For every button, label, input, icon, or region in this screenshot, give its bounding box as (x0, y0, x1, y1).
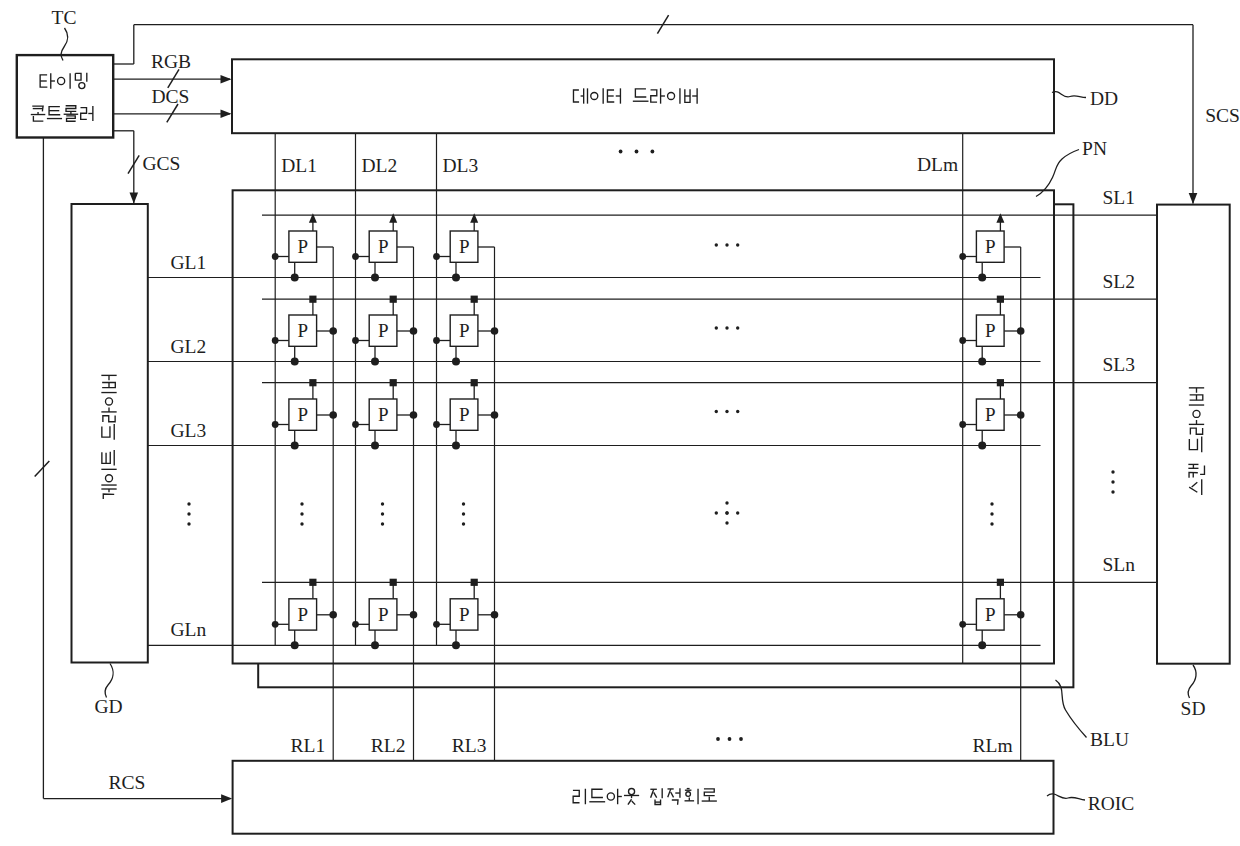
svg-text:BLU: BLU (1090, 729, 1129, 750)
svg-text:P: P (985, 604, 996, 625)
svg-text:P: P (378, 604, 389, 625)
svg-text:P: P (985, 320, 996, 341)
svg-text:SL3: SL3 (1103, 354, 1136, 375)
svg-text:P: P (459, 320, 470, 341)
svg-text:DCS: DCS (152, 86, 190, 107)
svg-text:DL2: DL2 (362, 155, 398, 176)
svg-text:RGB: RGB (151, 51, 191, 72)
svg-text:SL2: SL2 (1103, 271, 1136, 292)
svg-text:DL3: DL3 (443, 155, 479, 176)
svg-text:P: P (459, 404, 470, 425)
svg-text:P: P (298, 404, 309, 425)
svg-text:GCS: GCS (143, 153, 181, 174)
svg-text:RL3: RL3 (452, 735, 487, 756)
svg-text:P: P (378, 236, 389, 257)
svg-text:P: P (298, 236, 309, 257)
svg-text:GL3: GL3 (171, 420, 207, 441)
svg-text:GLn: GLn (171, 619, 207, 640)
svg-text:P: P (459, 604, 470, 625)
svg-text:RCS: RCS (109, 772, 146, 793)
svg-text:P: P (985, 404, 996, 425)
svg-text:GL2: GL2 (171, 336, 207, 357)
svg-text:P: P (298, 604, 309, 625)
svg-text:SD: SD (1181, 698, 1206, 719)
svg-text:P: P (459, 236, 470, 257)
svg-text:GL1: GL1 (171, 252, 207, 273)
svg-text:P: P (298, 320, 309, 341)
svg-text:ROIC: ROIC (1088, 793, 1135, 814)
svg-text:RL1: RL1 (291, 735, 326, 756)
svg-text:SL1: SL1 (1103, 187, 1136, 208)
svg-text:P: P (985, 236, 996, 257)
svg-text:PN: PN (1082, 138, 1107, 159)
svg-text:P: P (378, 320, 389, 341)
svg-text:DLm: DLm (917, 154, 958, 175)
svg-text:DD: DD (1090, 88, 1118, 109)
svg-text:P: P (378, 404, 389, 425)
svg-text:GD: GD (94, 696, 122, 717)
svg-text:SLn: SLn (1103, 554, 1136, 575)
svg-text:DL1: DL1 (281, 155, 317, 176)
svg-text:RL2: RL2 (371, 735, 406, 756)
svg-text:RLm: RLm (973, 735, 1013, 756)
svg-text:TC: TC (52, 7, 77, 28)
svg-text:SCS: SCS (1205, 105, 1240, 126)
